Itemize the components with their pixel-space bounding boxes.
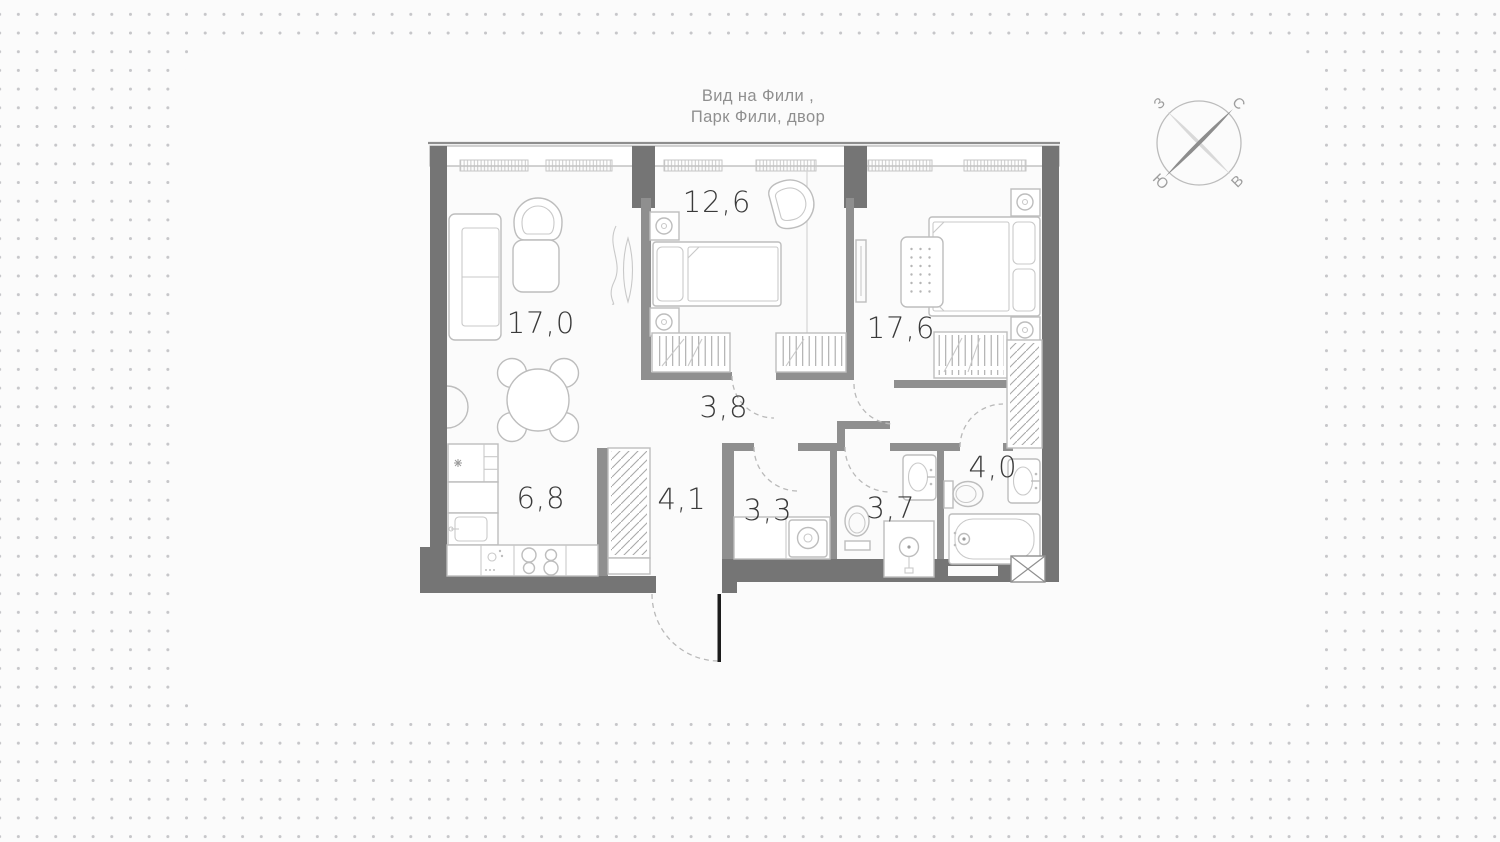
- nightstand: [650, 308, 679, 336]
- door-arc-shower-room: [845, 447, 890, 492]
- wall-right: [1042, 146, 1059, 582]
- wardrobe: [934, 332, 1007, 378]
- nightstand: [650, 212, 679, 240]
- floorplan-drawing: 17,0 12,6 17,6 3,8 6,8 4,1 3,3 3,7 4,0 З…: [0, 0, 1500, 842]
- vent-shaft: [1011, 556, 1045, 582]
- double-bed: [929, 217, 1040, 316]
- compass-east-label: В: [1228, 172, 1247, 191]
- area-label-shower-room: 3,7: [866, 491, 915, 525]
- decor-leaf: [624, 238, 633, 302]
- door-arc-entrance: [652, 594, 719, 661]
- radiator: [964, 160, 1026, 171]
- wall-left: [430, 146, 447, 547]
- kitchen-sink: [448, 513, 498, 545]
- door-arc-laundry: [754, 447, 798, 491]
- area-label-bedroom-master: 17,6: [867, 311, 936, 345]
- entrance-door-leaf: [718, 594, 722, 662]
- radiator: [460, 160, 528, 171]
- dining-table: [498, 359, 579, 442]
- area-label-bedroom-small: 12,6: [683, 185, 752, 219]
- kitchen-cabinet: [448, 482, 498, 513]
- floor-lamp: [447, 386, 468, 428]
- hall-closet: [608, 448, 650, 574]
- fridge: [448, 444, 498, 482]
- tv-panel: [856, 240, 866, 302]
- area-label-corridor: 3,8: [699, 390, 748, 424]
- area-label-bathroom: 4,0: [968, 450, 1017, 484]
- dresser: [901, 237, 943, 307]
- armchair: [766, 175, 819, 232]
- wardrobe: [652, 333, 730, 372]
- door-arc-bedroom-master: [854, 384, 894, 424]
- single-bed: [653, 242, 781, 306]
- corner-closet: [1007, 340, 1042, 448]
- decor-screen: [611, 226, 617, 304]
- radiator: [868, 160, 932, 171]
- wall-bottom-left: [420, 576, 656, 593]
- area-label-laundry: 3,3: [743, 493, 792, 527]
- area-label-living: 17,0: [507, 306, 576, 340]
- radiator: [546, 160, 612, 171]
- wardrobe: [776, 333, 846, 372]
- area-label-kitchen: 6,8: [516, 481, 565, 515]
- area-label-entry-hall: 4,1: [657, 482, 706, 516]
- toilet: [944, 481, 983, 508]
- compass-rose-icon: З С Ю В: [1149, 94, 1248, 193]
- washing-machine: [789, 520, 827, 557]
- compass-west-label: З: [1150, 94, 1168, 112]
- kitchen-counter: [447, 545, 598, 576]
- door-arc-bathroom: [960, 404, 1003, 447]
- coffee-table: [513, 240, 559, 292]
- shower: [884, 521, 934, 577]
- radiator: [664, 160, 722, 171]
- floorplan-canvas: Вид на Фили , Парк Фили, двор: [0, 0, 1500, 842]
- wall-niche: [948, 566, 998, 576]
- nightstand: [1011, 189, 1040, 216]
- sofa: [449, 214, 501, 340]
- armchair: [514, 198, 562, 240]
